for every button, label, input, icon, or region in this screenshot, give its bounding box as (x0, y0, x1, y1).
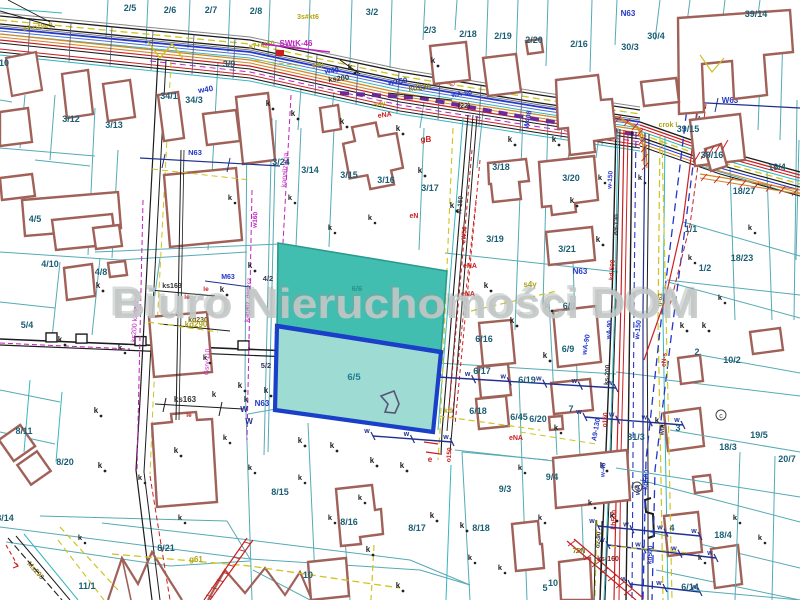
svg-text:8/18: 8/18 (472, 523, 490, 533)
svg-text:3/13: 3/13 (105, 120, 123, 130)
svg-text:w: w (706, 550, 713, 557)
svg-text:k: k (552, 135, 557, 144)
svg-text:11/1: 11/1 (78, 581, 95, 591)
svg-text:18/23: 18/23 (731, 253, 754, 263)
svg-text:8/16: 8/16 (340, 517, 358, 527)
svg-text:SWtK-46: SWtK-46 (280, 39, 313, 48)
svg-text:10: 10 (548, 578, 558, 588)
svg-text:6/5: 6/5 (347, 372, 361, 383)
svg-text:19/5: 19/5 (750, 430, 768, 440)
svg-text:o150: o150 (445, 447, 453, 463)
svg-text:s4y: s4y (312, 61, 325, 69)
svg-text:3/18: 3/18 (492, 162, 510, 172)
svg-text:8/21: 8/21 (157, 543, 175, 553)
svg-text:75N: 75N (573, 548, 586, 555)
svg-text:k: k (450, 201, 455, 210)
svg-text:k: k (508, 135, 513, 144)
svg-text:w: w (620, 576, 627, 583)
svg-text:2: 2 (694, 347, 699, 357)
svg-text:w: w (442, 434, 449, 441)
svg-text:2/20: 2/20 (525, 35, 543, 45)
svg-text:9/4: 9/4 (546, 472, 559, 482)
svg-text:gB: gB (421, 135, 432, 144)
svg-text:k: k (430, 511, 435, 520)
svg-text:N63: N63 (573, 267, 588, 276)
svg-text:w: w (499, 373, 506, 380)
svg-text:18/27: 18/27 (733, 186, 756, 196)
svg-text:eNA: eNA (463, 263, 477, 270)
svg-text:w-150: w-150 (606, 170, 614, 190)
svg-text:3: 3 (675, 423, 680, 433)
svg-text:7: 7 (568, 404, 573, 414)
svg-text:kd500: kd500 (646, 545, 654, 564)
svg-text:2/8: 2/8 (250, 6, 263, 16)
svg-text:2/6: 2/6 (164, 5, 177, 15)
svg-text:1/1: 1/1 (685, 224, 698, 234)
svg-text:8/14: 8/14 (0, 513, 14, 523)
svg-text:3s#kt6: 3s#kt6 (297, 14, 319, 21)
svg-text:8/11: 8/11 (15, 426, 32, 436)
svg-text:w: w (571, 378, 578, 385)
svg-text:g61: g61 (189, 555, 203, 564)
svg-text:6/17: 6/17 (473, 366, 491, 376)
svg-text:N63: N63 (621, 9, 636, 18)
svg-text:w: w (641, 414, 648, 421)
svg-text:3/21: 3/21 (558, 244, 576, 254)
svg-text:3/14: 3/14 (301, 165, 319, 175)
svg-text:k: k (212, 390, 217, 399)
svg-text:2/18: 2/18 (459, 29, 477, 39)
svg-text:k: k (655, 416, 660, 425)
svg-text:5: 5 (542, 583, 547, 593)
svg-text:w: w (403, 431, 410, 438)
svg-text:5/2: 5/2 (261, 361, 271, 370)
svg-text:N63: N63 (188, 148, 202, 157)
svg-text:W: W (240, 405, 248, 414)
svg-text:k: k (248, 261, 253, 270)
svg-text:39/16: 39/16 (701, 150, 724, 160)
svg-text:3/24: 3/24 (272, 157, 290, 167)
svg-text:k: k (244, 395, 249, 404)
svg-text:w-40: w-40 (599, 462, 607, 478)
svg-text:6/9: 6/9 (562, 344, 575, 354)
svg-text:k: k (174, 446, 179, 455)
svg-text:10: 10 (0, 58, 9, 68)
svg-text:eNA: eNA (509, 435, 523, 442)
svg-text:2/3: 2/3 (424, 25, 437, 35)
svg-text:ks163: ks163 (174, 395, 197, 404)
svg-text:9/3: 9/3 (499, 484, 512, 494)
svg-text:39/14: 39/14 (745, 9, 768, 19)
svg-text:30/4: 30/4 (647, 31, 665, 41)
svg-text:3/2: 3/2 (366, 7, 379, 17)
svg-text:crok I: crok I (659, 122, 678, 129)
svg-text:k: k (298, 436, 303, 445)
svg-text:k: k (418, 166, 423, 175)
svg-text:e: e (428, 455, 433, 464)
svg-text:5/4: 5/4 (21, 320, 34, 330)
svg-text:8/17: 8/17 (408, 523, 426, 533)
svg-text:6/16: 6/16 (475, 334, 493, 344)
svg-text:k: k (94, 406, 99, 415)
svg-text:N63: N63 (255, 399, 270, 408)
svg-text:k: k (340, 117, 345, 126)
svg-text:4/10: 4/10 (41, 259, 59, 269)
svg-text:W: W (245, 417, 253, 426)
svg-text:w: w (575, 409, 582, 416)
svg-text:20/7: 20/7 (778, 454, 796, 464)
svg-text:kd: kd (444, 408, 452, 415)
svg-text:31/3: 31/3 (627, 432, 645, 442)
svg-text:k: k (348, 63, 353, 72)
svg-text:k: k (98, 461, 103, 470)
svg-text:2/16: 2/16 (570, 39, 588, 49)
svg-text:2/19: 2/19 (494, 31, 512, 41)
svg-text:8/20: 8/20 (56, 457, 74, 467)
svg-text:w: w (690, 528, 697, 535)
svg-text:G: G (634, 485, 639, 492)
svg-text:k: k (431, 56, 436, 65)
svg-text:w: w (464, 371, 471, 378)
svg-text:6/18: 6/18 (469, 406, 487, 416)
svg-text:4: 4 (669, 523, 674, 533)
svg-text:2/5: 2/5 (124, 3, 137, 13)
svg-text:k: k (266, 99, 271, 108)
svg-text:k: k (596, 235, 601, 244)
svg-text:w: w (655, 580, 662, 587)
svg-text:19/4: 19/4 (768, 162, 786, 172)
svg-text:k: k (291, 109, 296, 118)
svg-text:k: k (570, 196, 575, 205)
svg-text:k: k (460, 521, 465, 530)
svg-text:w: w (656, 525, 663, 532)
svg-text:ks-160: ks-160 (597, 556, 619, 563)
svg-text:eN-s: eN-s (661, 352, 669, 367)
svg-text:k: k (543, 351, 548, 360)
svg-text:1/2: 1/2 (699, 263, 712, 273)
svg-text:w: w (535, 376, 542, 383)
svg-text:k: k (238, 381, 243, 390)
svg-text:w: w (588, 518, 595, 525)
svg-text:k: k (366, 545, 371, 554)
svg-text:k: k (58, 335, 63, 344)
svg-text:eN: eN (410, 213, 419, 220)
svg-text:6/20: 6/20 (529, 414, 547, 424)
svg-text:3/16: 3/16 (377, 175, 395, 185)
svg-text:3/20: 3/20 (562, 173, 580, 183)
svg-text:10/2: 10/2 (723, 355, 741, 365)
svg-text:(22): (22) (458, 103, 470, 110)
svg-text:39/15: 39/15 (677, 124, 700, 134)
svg-text:6/19: 6/19 (518, 375, 536, 385)
svg-text:k: k (400, 461, 405, 470)
svg-text:3/9: 3/9 (223, 59, 236, 69)
svg-text:18/3: 18/3 (719, 442, 737, 452)
svg-text:10: 10 (303, 570, 313, 580)
svg-text:o150: o150 (601, 412, 609, 428)
svg-text:8/15: 8/15 (271, 487, 289, 497)
svg-text:s4y: s4y (374, 100, 387, 108)
svg-text:6/14: 6/14 (681, 582, 699, 592)
svg-text:k: k (330, 441, 335, 450)
svg-text:18/4: 18/4 (714, 530, 732, 540)
svg-text:le: le (186, 412, 192, 419)
svg-text:30/3: 30/3 (621, 42, 639, 52)
svg-text:k: k (396, 581, 401, 590)
svg-text:Biuro Nieruchomości DOM: Biuro Nieruchomości DOM (112, 280, 700, 327)
svg-text:k: k (396, 124, 401, 133)
svg-text:w: w (363, 428, 370, 435)
svg-text:34/3: 34/3 (185, 95, 203, 105)
svg-text:4/8: 4/8 (95, 267, 108, 277)
svg-text:k: k (702, 321, 707, 330)
svg-text:wtk: wtk (659, 424, 667, 437)
svg-text:3/17: 3/17 (421, 183, 439, 193)
svg-text:k: k (610, 511, 615, 520)
svg-text:3/19: 3/19 (486, 234, 504, 244)
svg-text:k: k (96, 281, 101, 290)
svg-text:4/5: 4/5 (29, 214, 42, 224)
svg-text:2/7: 2/7 (205, 5, 218, 15)
svg-text:3/12: 3/12 (62, 114, 80, 124)
svg-text:34/1: 34/1 (160, 91, 178, 101)
svg-text:w160: w160 (252, 211, 260, 229)
svg-text:ks-200: ks-200 (603, 364, 611, 385)
svg-text:w: w (634, 541, 641, 548)
svg-text:c: c (719, 413, 723, 420)
svg-text:w: w (622, 521, 629, 528)
svg-text:k: k (370, 456, 375, 465)
svg-text:6/45: 6/45 (510, 412, 528, 422)
svg-text:k: k (264, 386, 269, 395)
svg-text:3/15: 3/15 (340, 170, 358, 180)
